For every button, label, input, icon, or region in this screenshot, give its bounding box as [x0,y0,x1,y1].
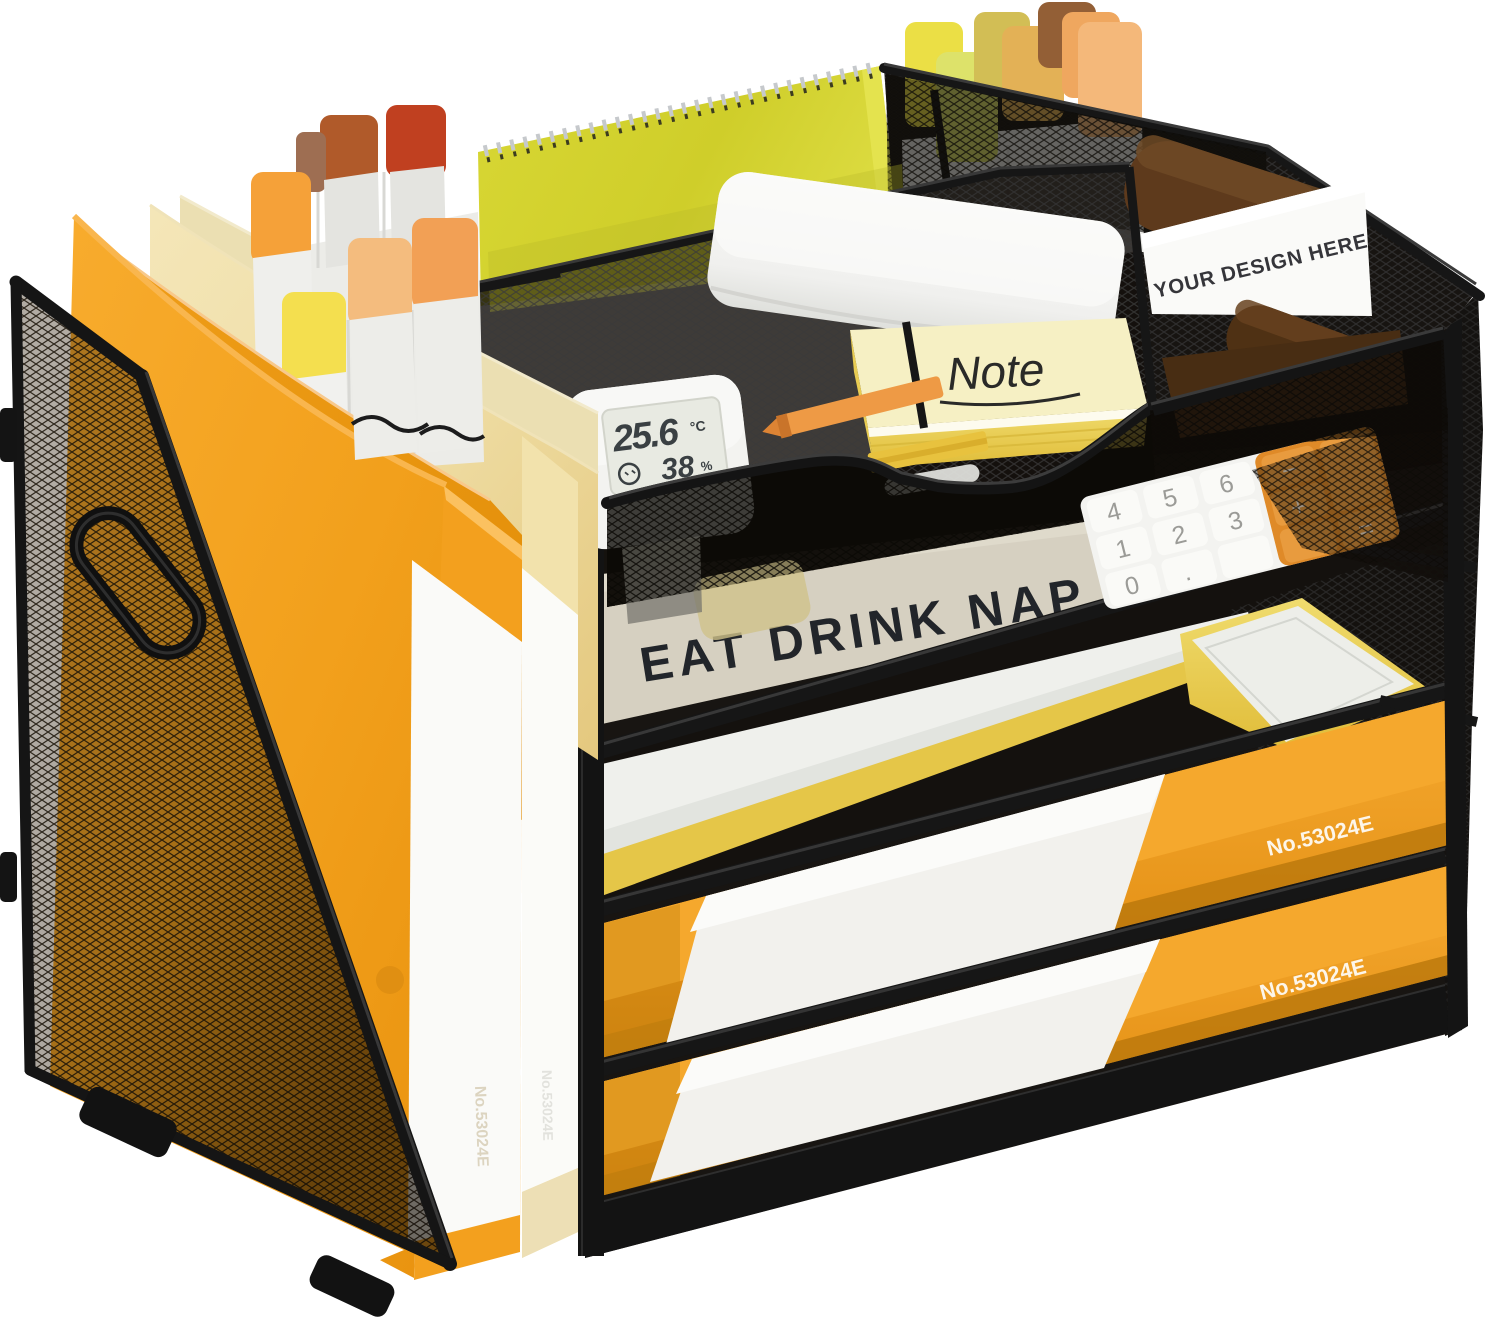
svg-text:%: % [700,458,714,474]
svg-text:Note: Note [946,343,1046,400]
svg-text:°C: °C [689,417,707,435]
svg-text:No.53024E: No.53024E [471,1086,491,1168]
svg-text:No.53024E: No.53024E [539,1070,556,1141]
